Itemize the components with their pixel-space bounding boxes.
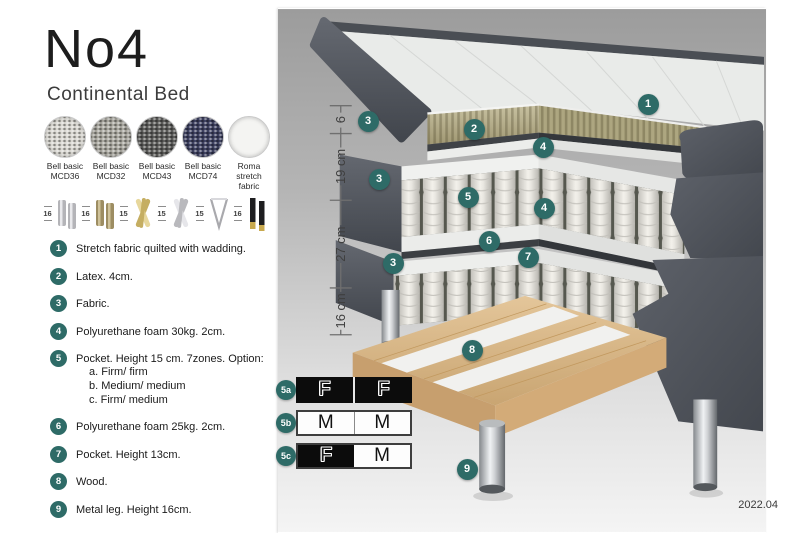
feature-text-wrap: Polyurethane foam 30kg. 2cm. (76, 323, 225, 340)
feature-item: 7Pocket. Height 13cm. (50, 446, 274, 463)
firmness-cell-M[interactable]: M (354, 445, 410, 467)
leg-option[interactable]: 16 (232, 188, 270, 238)
feature-options: a. Firm/ firmb. Medium/ mediumc. Firm/ m… (76, 366, 264, 407)
feature-option-line: a. Firm/ firm (76, 366, 264, 380)
firmness-cell-M[interactable]: M (355, 412, 411, 434)
diagram-badge-5: 5 (458, 187, 479, 208)
feature-number-badge: 5 (50, 350, 67, 367)
leg-cylinder-pair-icon (55, 195, 79, 231)
feature-text-wrap: Pocket. Height 15 cm. 7zones. Option:a. … (76, 350, 264, 408)
leg-tapered-pair-icon (245, 195, 269, 231)
fabric-swatch: Bell basic MCD43 (134, 116, 180, 192)
feature-item: 9Metal leg. Height 16cm. (50, 501, 274, 518)
firmness-row-5a[interactable]: 5aFF (276, 376, 412, 403)
diagram-badge-6: 6 (479, 231, 500, 252)
feature-text: Latex. 4cm. (76, 268, 133, 284)
leg-option[interactable]: 15 (156, 188, 194, 238)
page: No4 Continental Bed Bell basic MCD36Bell… (0, 0, 800, 533)
fabric-swatch-circle[interactable] (136, 116, 178, 158)
leg-cross-icon (168, 195, 194, 231)
feature-text-wrap: Stretch fabric quilted with wadding. (76, 240, 246, 257)
feature-text: Pocket. Height 15 cm. 7zones. Option: (76, 350, 264, 366)
leg-cross-icon (130, 195, 156, 231)
feature-item: 6Polyurethane foam 25kg. 2cm. (50, 418, 274, 435)
leg-height-measure: 16 (42, 204, 53, 223)
leg-hairpin-icon (206, 195, 232, 231)
feature-item: 3Fabric. (50, 295, 274, 312)
feature-text: Polyurethane foam 25kg. 2cm. (76, 418, 225, 434)
fabric-swatch-label: Roma stretch fabric (226, 161, 272, 192)
diagram-badge-4: 4 (533, 137, 554, 158)
feature-text: Pocket. Height 13cm. (76, 446, 181, 462)
feature-option-line: b. Medium/ medium (76, 380, 264, 394)
feature-text-wrap: Polyurethane foam 25kg. 2cm. (76, 418, 225, 435)
leg-option-list: 16 16 15 15 15 16 (42, 188, 274, 238)
firmness-badge-5a: 5a (276, 380, 296, 400)
leg-height-measure: 15 (156, 204, 167, 223)
leg-glyph (205, 195, 232, 231)
feature-text-wrap: Latex. 4cm. (76, 268, 133, 285)
fabric-swatch: Roma stretch fabric (226, 116, 272, 192)
diagram-badge-1: 1 (638, 94, 659, 115)
firmness-cell-F[interactable]: F (296, 377, 355, 403)
leg-glyph (91, 195, 118, 231)
feature-text: Stretch fabric quilted with wadding. (76, 240, 246, 256)
firmness-cell-F[interactable]: F (298, 445, 354, 467)
product-subtitle: Continental Bed (47, 84, 190, 106)
feature-number-badge: 2 (50, 268, 67, 285)
firmness-cell-F[interactable]: F (355, 377, 412, 403)
fabric-swatch-circle[interactable] (182, 116, 224, 158)
firmness-row-5c[interactable]: 5cFM (276, 442, 412, 469)
leg-glyph (167, 195, 194, 231)
info-panel: No4 Continental Bed Bell basic MCD36Bell… (0, 0, 278, 533)
diagram-badge-2: 2 (464, 119, 485, 140)
ruler-label-19cm: 19 cm (333, 149, 348, 184)
feature-text: Fabric. (76, 295, 110, 311)
product-title: No4 (44, 18, 149, 80)
fabric-swatch: Bell basic MCD32 (88, 116, 134, 192)
leg-height-measure: 15 (194, 204, 205, 223)
leg-glyph (129, 195, 156, 231)
feature-number-badge: 7 (50, 446, 67, 463)
feature-number-badge: 3 (50, 295, 67, 312)
feature-text-wrap: Metal leg. Height 16cm. (76, 501, 192, 518)
fabric-swatch-list: Bell basic MCD36Bell basic MCD32Bell bas… (42, 116, 274, 192)
leg-glyph (53, 195, 80, 231)
firmness-bar-5c: FM (296, 443, 412, 469)
feature-text: Polyurethane foam 30kg. 2cm. (76, 323, 225, 339)
fabric-swatch: Bell basic MCD74 (180, 116, 226, 192)
feature-list: 1Stretch fabric quilted with wadding.2La… (50, 240, 274, 528)
firmness-badge-5c: 5c (276, 446, 296, 466)
fabric-swatch-label: Bell basic MCD32 (93, 161, 129, 181)
fabric-swatch-circle[interactable] (90, 116, 132, 158)
feature-option-line: c. Firm/ medium (76, 394, 264, 408)
diagram-badge-8: 8 (462, 340, 483, 361)
feature-text-wrap: Pocket. Height 13cm. (76, 446, 181, 463)
feature-item: 2Latex. 4cm. (50, 268, 274, 285)
feature-item: 5Pocket. Height 15 cm. 7zones. Option:a.… (50, 350, 274, 408)
feature-number-badge: 6 (50, 418, 67, 435)
firmness-bar-5b: MM (296, 410, 412, 436)
firmness-bar-5a: FF (296, 377, 412, 403)
leg-glyph (243, 195, 270, 231)
ruler-label-16cm: 16 cm (333, 293, 348, 328)
leg-option[interactable]: 16 (80, 188, 118, 238)
feature-text: Metal leg. Height 16cm. (76, 501, 192, 517)
leg-option[interactable]: 16 (42, 188, 80, 238)
fabric-swatch-label: Bell basic MCD74 (185, 161, 221, 181)
diagram-badge-3: 3 (369, 169, 390, 190)
feature-number-badge: 9 (50, 501, 67, 518)
feature-text: Wood. (76, 473, 108, 489)
feature-item: 1Stretch fabric quilted with wadding. (50, 240, 274, 257)
fabric-swatch-label: Bell basic MCD43 (139, 161, 175, 181)
leg-option[interactable]: 15 (194, 188, 232, 238)
firmness-cell-M[interactable]: M (298, 412, 355, 434)
fabric-swatch-label: Bell basic MCD36 (47, 161, 83, 181)
leg-height-measure: 16 (80, 204, 91, 223)
firmness-badge-5b: 5b (276, 413, 296, 433)
diagram-badge-3: 3 (358, 111, 379, 132)
leg-cylinder-pair-icon (93, 195, 117, 231)
ruler-label-top: 6 (333, 116, 348, 123)
diagram-badge-3: 3 (383, 253, 404, 274)
feature-number-badge: 1 (50, 240, 67, 257)
firmness-row-5b[interactable]: 5bMM (276, 409, 412, 436)
feature-number-badge: 8 (50, 473, 67, 490)
feature-item: 4Polyurethane foam 30kg. 2cm. (50, 323, 274, 340)
diagram-badge-4: 4 (534, 198, 555, 219)
feature-text-wrap: Wood. (76, 473, 108, 490)
feature-item: 8Wood. (50, 473, 274, 490)
ruler-label-27cm: 27 cm (333, 226, 348, 261)
leg-height-measure: 15 (118, 204, 129, 223)
fabric-swatch: Bell basic MCD36 (42, 116, 88, 192)
fabric-swatch-circle[interactable] (228, 116, 270, 158)
diagram-badge-7: 7 (518, 247, 539, 268)
leg-option[interactable]: 15 (118, 188, 156, 238)
feature-number-badge: 4 (50, 323, 67, 340)
leg-height-measure: 16 (232, 204, 243, 223)
diagram-badge-9: 9 (457, 459, 478, 480)
feature-text-wrap: Fabric. (76, 295, 110, 312)
illustration-panel: 6 19 cm 27 cm 16 cm 123334456789 5aFF5bM… (278, 8, 766, 533)
fabric-swatch-circle[interactable] (44, 116, 86, 158)
catalog-date: 2022.04 (738, 499, 778, 511)
